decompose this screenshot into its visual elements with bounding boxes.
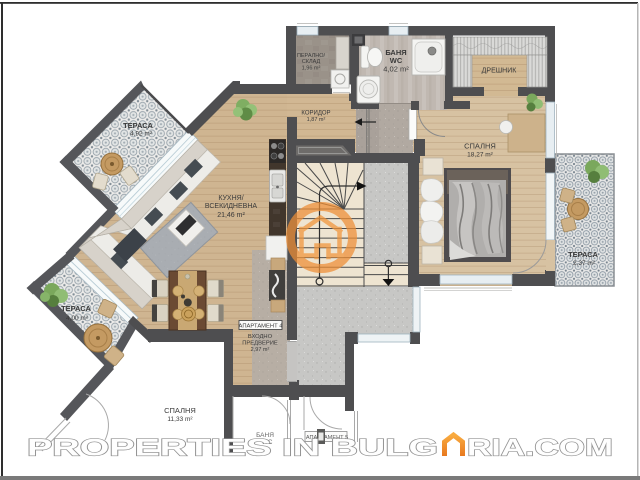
svg-text:ТЕРАСА: ТЕРАСА bbox=[61, 304, 91, 313]
svg-text:ДРЕШНИК: ДРЕШНИК bbox=[482, 68, 518, 75]
svg-text:АПАРТАМЕНТ 4: АПАРТАМЕНТ 4 bbox=[239, 324, 284, 330]
svg-text:18,27 m²: 18,27 m² bbox=[467, 152, 493, 159]
svg-text:КУХНЯ/: КУХНЯ/ bbox=[218, 195, 243, 202]
svg-text:4,02 m²: 4,02 m² bbox=[383, 65, 409, 74]
svg-text:ВХОДНО: ВХОДНО bbox=[248, 334, 273, 340]
svg-text:PROPERTIES IN BULG: PROPERTIES IN BULG bbox=[27, 435, 438, 462]
svg-text:КОРИДОР: КОРИДОР bbox=[301, 111, 330, 117]
svg-text:ТЕРАСА: ТЕРАСА bbox=[123, 121, 153, 130]
svg-text:11,33 m²: 11,33 m² bbox=[167, 416, 193, 423]
svg-text:2,37 m²: 2,37 m² bbox=[573, 260, 596, 267]
svg-text:4,00 m²: 4,00 m² bbox=[66, 315, 89, 322]
svg-text:2,97 m²: 2,97 m² bbox=[251, 347, 270, 353]
svg-text:СКЛАД: СКЛАД bbox=[302, 59, 321, 65]
svg-text:ТЕРАСА: ТЕРАСА bbox=[568, 250, 598, 259]
svg-text:RIA.COM: RIA.COM bbox=[467, 435, 613, 462]
svg-text:1,96 m²: 1,96 m² bbox=[302, 66, 321, 72]
svg-text:ПРЕДВЕРИЕ: ПРЕДВЕРИЕ bbox=[242, 341, 278, 347]
svg-text:4,92 m²: 4,92 m² bbox=[130, 131, 153, 138]
svg-text:1,87 m²: 1,87 m² bbox=[307, 117, 326, 123]
svg-text:21,46 m²: 21,46 m² bbox=[217, 212, 245, 219]
svg-text:СПАЛНЯ: СПАЛНЯ bbox=[464, 142, 496, 151]
svg-text:ВСЕКИДНЕВНА: ВСЕКИДНЕВНА bbox=[205, 203, 257, 210]
svg-text:СПАЛНЯ: СПАЛНЯ bbox=[164, 406, 196, 415]
